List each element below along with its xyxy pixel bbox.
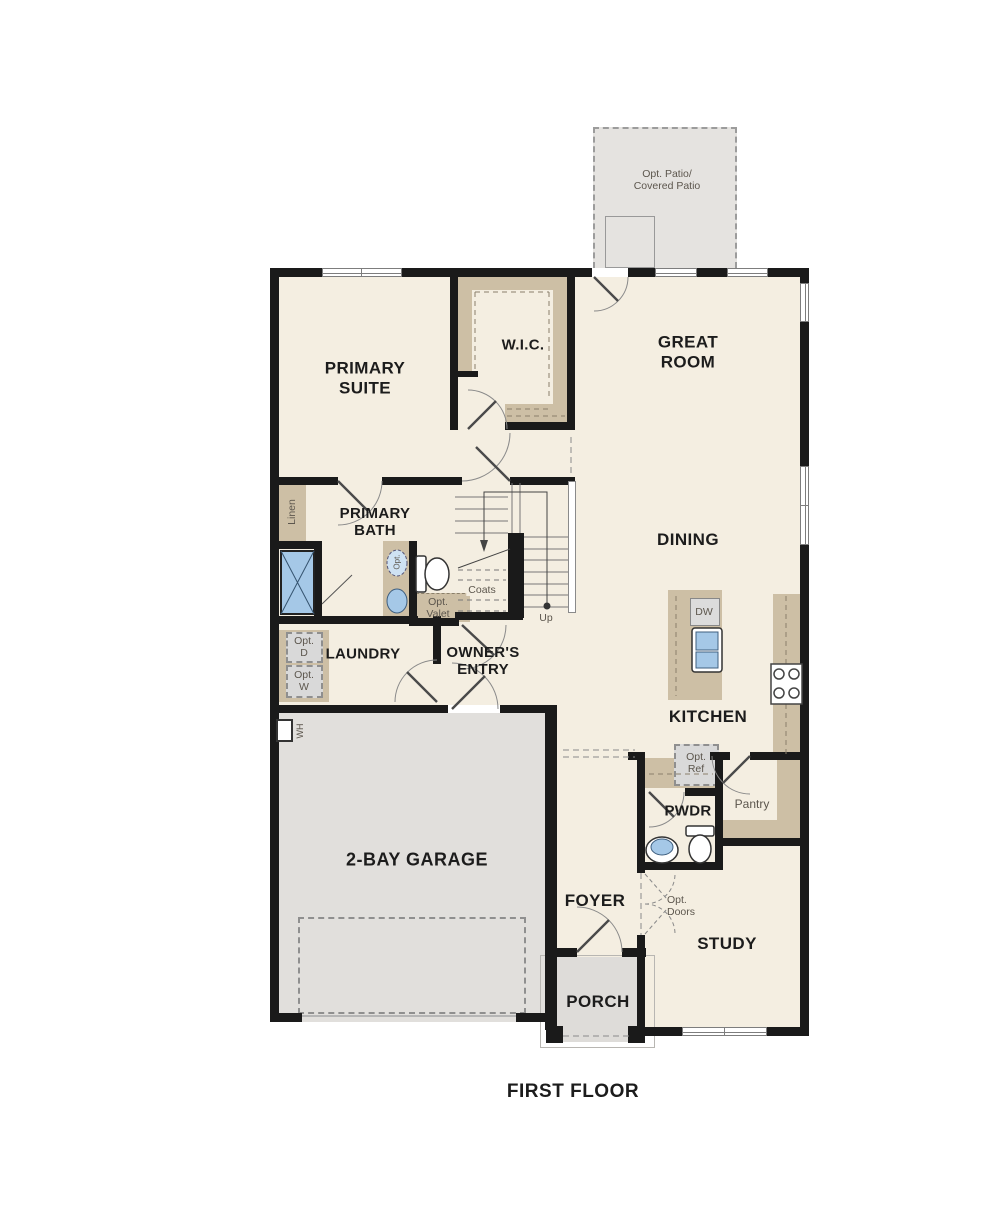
stair-newel-wall <box>508 533 524 618</box>
wall <box>750 752 802 760</box>
stair-knee-wall <box>568 481 576 613</box>
wall <box>455 612 523 620</box>
porch-post <box>546 1026 563 1043</box>
linen-label: Linen <box>286 499 298 525</box>
porch-label: PORCH <box>566 992 629 1012</box>
window <box>800 283 809 322</box>
great-room-label: GREAT ROOM <box>658 332 718 371</box>
wic-label: W.I.C. <box>502 336 545 353</box>
opt-ref-label: Opt. Ref <box>686 751 706 775</box>
patio-chimney <box>605 216 655 268</box>
foyer-label: FOYER <box>565 891 626 911</box>
wall <box>685 788 715 796</box>
wall <box>545 948 577 957</box>
laundry-label: LAUNDRY <box>326 645 401 662</box>
wall <box>800 268 809 283</box>
wall <box>715 752 723 870</box>
water-heater <box>276 719 293 742</box>
wall <box>637 957 645 1035</box>
study-label: STUDY <box>697 934 757 954</box>
water-heater-label: WH <box>295 724 305 739</box>
opt-sink-label: Opt. <box>392 554 401 569</box>
wall <box>715 838 808 846</box>
wall <box>270 477 338 485</box>
pantry-shelf-bottom <box>723 820 800 838</box>
wall <box>270 705 448 713</box>
primary-bath-label: PRIMARY BATH <box>340 505 411 540</box>
coats-label: Coats <box>466 584 497 596</box>
wall <box>516 1013 546 1022</box>
wall <box>270 541 322 549</box>
window <box>322 268 402 277</box>
dining-label: DINING <box>657 530 719 550</box>
wall <box>567 277 575 430</box>
wall <box>505 422 575 430</box>
floor-plan: Opt. Patio/ Covered Patio PRIMARY SUITE … <box>0 0 1000 1216</box>
garage-door-panel <box>298 917 526 1014</box>
kitchen-label: KITCHEN <box>669 707 747 727</box>
wall <box>402 268 592 277</box>
wall <box>270 268 279 1022</box>
window-divider <box>724 1027 725 1036</box>
window <box>727 268 768 277</box>
wall <box>637 862 723 870</box>
pantry-label: Pantry <box>735 798 770 812</box>
window <box>655 268 697 277</box>
wall <box>510 477 575 485</box>
opt-valet-label: Opt. Valet <box>426 596 449 620</box>
wall <box>767 1027 809 1036</box>
opt-doors-label: Opt. Doors <box>667 894 695 918</box>
wall <box>270 1013 302 1022</box>
wall <box>450 277 458 430</box>
pantry-shelf-right <box>777 760 800 820</box>
wall <box>458 371 478 377</box>
window-divider <box>800 505 809 506</box>
wic-shelf-right <box>553 277 567 422</box>
wall <box>314 549 322 616</box>
garage-label: 2-BAY GARAGE <box>346 850 488 871</box>
wall <box>545 705 557 1030</box>
wall <box>637 752 645 873</box>
up-label: Up <box>539 612 552 624</box>
wall <box>382 477 462 485</box>
opt-dryer-label: Opt. D <box>294 635 314 659</box>
kitchen-counter <box>773 594 800 758</box>
pwdr-label: PWDR <box>664 802 711 819</box>
primary-suite-label: PRIMARY SUITE <box>325 358 406 397</box>
wall <box>270 616 418 624</box>
bath-vanity <box>383 541 409 619</box>
wall <box>628 268 655 277</box>
wall <box>409 541 417 624</box>
wall <box>800 322 809 466</box>
window-divider <box>361 268 362 277</box>
patio-label: Opt. Patio/ Covered Patio <box>634 168 701 192</box>
dishwasher-label: DW <box>695 606 713 618</box>
wic-shelf-bottom <box>505 404 567 422</box>
porch-post <box>628 1026 645 1043</box>
wall <box>637 935 645 957</box>
wall <box>433 616 441 664</box>
wic-shelf-left <box>458 277 472 373</box>
wall <box>800 545 809 1036</box>
owners-entry-label: OWNER'S ENTRY <box>446 644 519 679</box>
wic-shelf-top <box>458 277 567 290</box>
plan-title: FIRST FLOOR <box>507 1081 639 1103</box>
opt-washer-label: Opt. W <box>294 669 314 693</box>
wall <box>697 268 727 277</box>
garage-threshold <box>302 1015 516 1017</box>
